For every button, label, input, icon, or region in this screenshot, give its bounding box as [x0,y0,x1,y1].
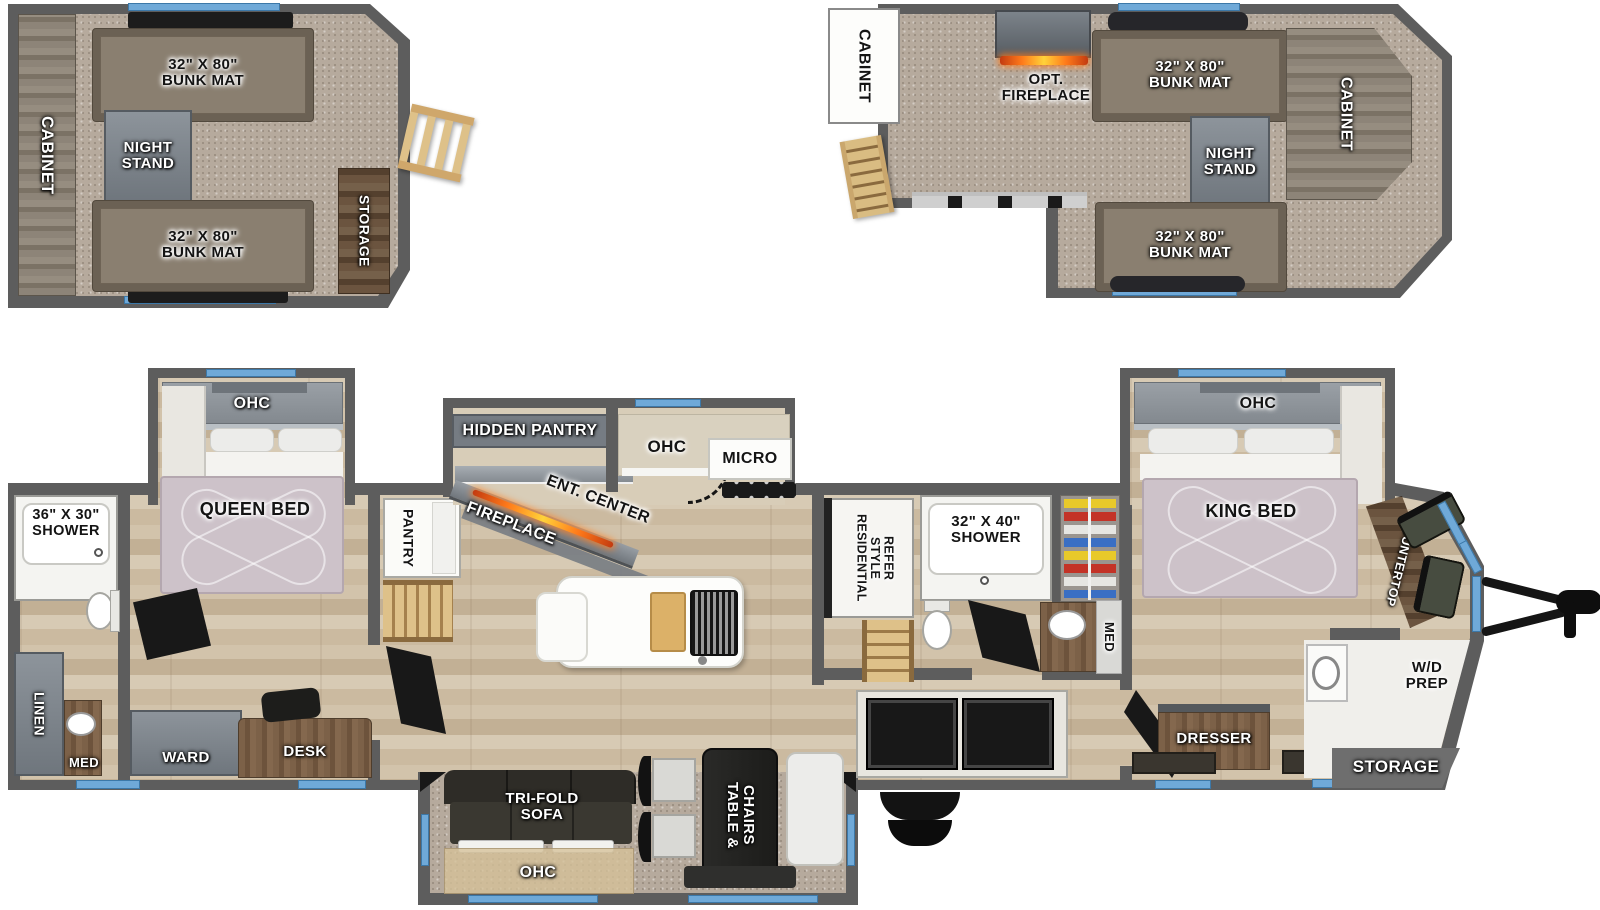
wd-prep-label: W/D PREP [1392,652,1462,700]
loft2-bunk-top-label: 32" X 80" BUNK MAT [1126,52,1254,98]
loft2-bunk-bottom-bolster [1110,276,1245,292]
king-bed [1142,478,1358,598]
entry-door-glass-panel [866,698,958,770]
loft2-stair-treads [912,192,1087,208]
front-shower-label: 36" X 30" SHOWER [16,500,116,548]
table-chairs-label: TABLE & CHAIRS [702,748,778,882]
window [421,814,429,866]
hidden-pantry-label: HIDDEN PANTRY [452,414,608,448]
window [1472,576,1481,632]
hitch-jack-icon [1564,602,1576,638]
window [635,399,701,407]
refer-label: RESIDENTIAL STYLE REFER [838,504,910,612]
loft2-bunk-bottom-label: 32" X 80" BUNK MAT [1126,222,1254,268]
front-shower-drain-icon [94,548,103,557]
mid-toilet-icon [922,610,952,650]
window [1155,780,1211,789]
window [298,780,366,789]
front-linen-label: LINEN [14,652,64,776]
loft1-cabinet-label: CABINET [18,14,76,296]
loft2-fireplace-cabinet [995,10,1091,58]
micro-label: MICRO [710,446,790,472]
wall [118,495,130,780]
refrigerator-hinge-strip [824,498,832,618]
bedroom2-desk-chair [261,687,322,723]
entry-door-glass-panel [962,698,1054,770]
loft2-night-stand-label: NIGHT STAND [1192,134,1268,190]
front-med-label: MED [60,752,108,774]
king-bed-label: KING BED [1196,500,1306,524]
loft1-bunk-bottom-label: 32" X 80" BUNK MAT [140,222,266,268]
queen-sheet [206,452,343,478]
loft1-ladder-icon [397,104,474,183]
queen-pillow [210,428,274,452]
floorplan-canvas: CABINET 32" X 80" BUNK MAT NIGHT STAND 3… [0,0,1600,910]
front-toilet-tank [110,590,120,632]
loft1-night-stand-label: NIGHT STAND [106,128,190,184]
cutting-board-icon [650,592,686,652]
loft2-window-top [1118,3,1240,11]
dresser-label: DRESSER [1166,726,1262,752]
washer-door-icon [1312,656,1340,690]
dinette-table-base [684,866,796,888]
dinette-chair-back [638,756,651,806]
loft2-bunk-top-bolster [1108,12,1248,32]
loft1-bunk-top-label: 32" X 80" BUNK MAT [140,50,266,96]
queen-bed-label: QUEEN BED [197,498,313,522]
hitch-frame-bar [1481,607,1567,637]
queen-bed [160,476,344,594]
window [847,814,855,866]
loft1-storage-label: STORAGE [338,168,390,294]
tri-fold-sofa-label: TRI-FOLD SOFA [494,786,590,828]
wall [1052,495,1060,605]
king-pillow [1244,428,1334,454]
pantry-label: PANTRY [385,498,431,578]
wall [606,408,618,492]
front-sink-icon [66,712,96,736]
storage-label: STORAGE [1340,752,1452,782]
window [1178,369,1286,377]
closet-rod-icon [1088,497,1091,600]
mid-sink-icon [1048,610,1086,640]
loft2-opt-fireplace-label: OPT. FIREPLACE [982,76,1110,100]
wall [1330,628,1400,640]
hitch-coupler-icon [1556,590,1600,614]
window [206,369,296,377]
island-mat [536,592,588,662]
king-ohc-label: OHC [1228,392,1288,416]
wall [1120,766,1132,780]
loft2-cabinet-left-label: CABINET [828,8,900,124]
mid-shower-drain-icon [980,576,989,585]
kitchen-ohc-label: OHC [636,434,698,460]
range-cooktop-icon [722,482,796,498]
loft2-cabinet-right-label: CABINET [1296,38,1396,190]
hitch-frame-bar [1481,576,1567,606]
king-pillow [1148,428,1238,454]
dinette-bench [786,752,844,866]
bench-cabinet [1132,752,1216,774]
dinette-chair [652,814,696,858]
wall [368,495,380,645]
loft-stairs-left [383,580,453,642]
loft2-fireplace-flame-icon [1000,56,1088,65]
entry-steps-icon [888,820,952,846]
dinette-chair [652,758,696,802]
wall [812,495,824,685]
bedroom2-ward-label: WARD [152,746,220,770]
island-sink-grate-icon [690,590,738,656]
queen-ohc-label: OHC [222,392,282,416]
entry-steps-icon [880,792,960,820]
bedroom2-desk-label: DESK [268,740,342,764]
sofa-ohc-label: OHC [508,860,568,886]
island-faucet-icon [698,656,707,665]
dinette-chair-back [638,812,651,862]
mid-med-label: MED [1096,600,1122,674]
loft1-bed-deck-top [128,12,293,29]
window [468,895,598,903]
loft1-window-top [128,3,280,11]
window [688,895,818,903]
queen-pillow [278,428,342,452]
window [76,780,140,789]
mid-shower-label: 32" X 40" SHOWER [928,506,1044,554]
loft-stairs-right [862,620,914,682]
king-sheet [1140,454,1340,480]
